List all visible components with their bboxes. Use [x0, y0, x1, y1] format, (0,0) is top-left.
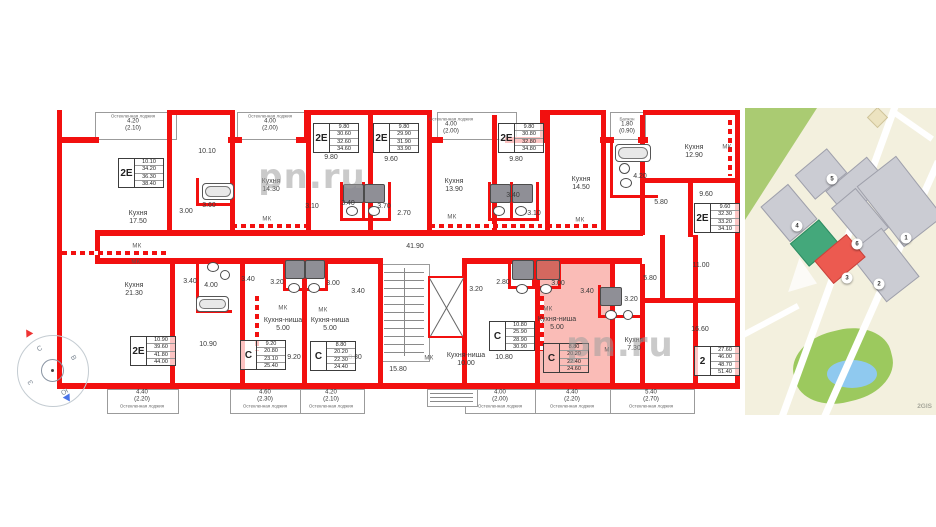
- wall-segment: [167, 140, 172, 235]
- room-label: 15.80: [389, 366, 407, 374]
- unit-spec-table[interactable]: 2Е10.1034.2036.3038.40: [118, 158, 164, 188]
- room-label: Кухня-ниша 5.00: [538, 316, 576, 332]
- unit-area-value: 32.60: [330, 139, 358, 146]
- unit-type-label: С: [490, 322, 506, 350]
- map-provider-logo: 2GIS: [917, 403, 932, 410]
- unit-type-label: 2Е: [499, 124, 515, 152]
- dashed-wall-segment: [62, 251, 167, 255]
- loggia-coeff-value: (2.20): [564, 396, 580, 403]
- loggia-caption: Остекленная лоджия: [120, 403, 164, 408]
- room-label: 3.40: [241, 276, 255, 284]
- loggia-area-value: 4.00: [494, 390, 506, 397]
- stair-divider-line: [404, 268, 405, 356]
- loggia-area-value: 1.80: [621, 122, 633, 129]
- room-label: 3.20: [270, 279, 284, 287]
- map-road: [745, 303, 800, 341]
- loggia-coeff-value: (2.00): [262, 126, 278, 133]
- shower-tray-icon: [600, 287, 622, 306]
- unit-area-value: 23.10: [257, 356, 285, 363]
- floorplan-viewer: 10.10Кухня 17.503.003.60Кухня 14.30МКМК9…: [0, 0, 936, 527]
- room-label: 4.20: [633, 173, 647, 181]
- loggia-area-value: 4.40: [566, 390, 578, 397]
- room-label: Кухня 14.30: [262, 178, 281, 194]
- wall-segment: [306, 115, 311, 235]
- room-label: МК: [604, 348, 613, 355]
- toilet-icon: [308, 283, 320, 293]
- loggia-label: Остекленная лоджия4.20(2.10): [94, 114, 172, 133]
- room-label: 10.90: [199, 341, 217, 349]
- wall-segment: [688, 180, 693, 237]
- room-label: 3.20: [469, 286, 483, 294]
- unit-areas: 27.6046.0048.7051.40: [711, 347, 739, 375]
- unit-area-value: 32.30: [711, 211, 739, 218]
- room-label: Кухня 17.50: [129, 210, 148, 226]
- unit-spec-table[interactable]: 2Е9.8029.9031.9033.90: [373, 123, 419, 153]
- room-label: 3.70: [377, 203, 391, 211]
- unit-area-value: 32.80: [515, 139, 543, 146]
- wall-segment: [660, 235, 665, 298]
- unit-spec-table[interactable]: 2Е9.8030.6032.6034.60: [313, 123, 359, 153]
- room-label: МК: [131, 260, 140, 267]
- unit-spec-table[interactable]: С9.2020.8023.1025.40: [240, 340, 286, 370]
- toilet-icon: [620, 178, 632, 188]
- wall-segment: [170, 258, 175, 389]
- bathtub-icon: [196, 296, 229, 312]
- loggia-coeff-value: (2.00): [443, 129, 459, 136]
- unit-areas: 10.8025.9028.9030.90: [506, 322, 534, 350]
- unit-type-label: 2Е: [131, 337, 147, 365]
- unit-area-value: 8.80: [327, 342, 355, 349]
- wall-segment: [488, 218, 539, 221]
- room-label: Кухня 12.90: [685, 144, 704, 160]
- map-road: [890, 108, 934, 142]
- wall-segment: [610, 258, 615, 389]
- unit-area-value: 9.80: [515, 124, 543, 131]
- shower-tray-icon: [305, 260, 325, 279]
- unit-areas: 9.8030.8032.8034.80: [515, 124, 543, 152]
- balcony-outline: [380, 264, 430, 362]
- loggia-area-value: 4.00: [445, 122, 457, 129]
- unit-area-value: 33.20: [711, 219, 739, 226]
- wall-segment: [388, 182, 391, 221]
- unit-area-value: 36.30: [135, 174, 163, 181]
- unit-area-value: 25.90: [506, 329, 534, 336]
- room-label: 9.60: [699, 191, 713, 199]
- loggia-label: 4.20(2.10)Остекленная лоджия: [292, 390, 370, 409]
- loggia-label: Балкон1.80(0.90): [588, 117, 666, 136]
- unit-area-value: 9.80: [330, 124, 358, 131]
- loggia-area-value: 4.00: [264, 119, 276, 126]
- unit-type-label: С: [311, 342, 327, 370]
- toilet-icon: [515, 206, 527, 216]
- unit-areas: 10.9039.6041.8044.00: [147, 337, 175, 365]
- wall-segment: [340, 218, 391, 221]
- room-label: 3.00: [551, 280, 565, 288]
- bathtub-basin: [199, 299, 226, 309]
- unit-type-label: С: [544, 344, 560, 372]
- room-label: 3.00: [326, 280, 340, 288]
- unit-areas: 9.8030.6032.6034.60: [330, 124, 358, 152]
- unit-area-value: 10.90: [147, 337, 175, 344]
- room-label: МК: [722, 145, 731, 152]
- bathtub-icon: [615, 144, 651, 162]
- bathtub-basin: [618, 147, 648, 159]
- loggia-area-value: 5.40: [645, 390, 657, 397]
- wall-segment: [545, 115, 550, 235]
- unit-area-value: 41.80: [147, 352, 175, 359]
- dashed-wall-segment: [232, 224, 306, 228]
- unit-type-label: 2Е: [695, 204, 711, 232]
- room-label: 9.60: [384, 156, 398, 164]
- map-building-marker[interactable]: 3: [842, 273, 853, 284]
- loggia-caption: Остекленная лоджия: [550, 403, 594, 408]
- unit-area-value: 24.60: [560, 366, 588, 372]
- wall-segment: [57, 110, 62, 389]
- room-label: 3.40: [506, 192, 520, 200]
- map-building-marker[interactable]: 2: [874, 279, 885, 290]
- shower-tray-icon: [285, 260, 305, 279]
- unit-area-value: 10.10: [135, 159, 163, 166]
- unit-area-value: 30.60: [330, 131, 358, 138]
- loggia-caption: Остекленная лоджия: [309, 403, 353, 408]
- unit-area-value: 46.00: [711, 354, 739, 361]
- loggia-area-value: 4.40: [136, 390, 148, 397]
- unit-type-label: 2: [695, 347, 711, 375]
- wall-segment: [95, 230, 100, 264]
- room-label: 5.80: [643, 275, 657, 283]
- room-label: МК: [318, 308, 327, 315]
- unit-area-value: 34.60: [330, 146, 358, 152]
- room-label: МК: [262, 217, 271, 224]
- room-label: 5.80: [654, 199, 668, 207]
- loggia-area-value: 4.20: [127, 119, 139, 126]
- room-label: МК: [575, 218, 584, 225]
- loggia-caption: Остекленная лоджия: [629, 403, 673, 408]
- unit-area-value: 8.80: [560, 344, 588, 351]
- unit-area-value: 9.80: [390, 124, 418, 131]
- room-label: МК: [447, 215, 456, 222]
- unit-area-value: 24.40: [327, 364, 355, 370]
- toilet-icon: [288, 283, 300, 293]
- map-building-marker[interactable]: 1: [901, 233, 912, 244]
- loggia-label: 4.00(2.00)Остекленная лоджия: [461, 390, 539, 409]
- unit-type-label: 2Е: [119, 159, 135, 187]
- room-label: 2.70: [397, 210, 411, 218]
- unit-spec-table[interactable]: 2Е10.9039.6041.8044.00: [130, 336, 176, 366]
- wall-segment: [492, 115, 497, 235]
- shower-tray-icon: [364, 184, 385, 203]
- loggia-coeff-value: (2.70): [643, 396, 659, 403]
- room-label: 9.80: [509, 156, 523, 164]
- room-label: Кухня 7.30: [625, 337, 644, 353]
- wall-segment: [167, 110, 235, 115]
- unit-area-value: 34.20: [135, 166, 163, 173]
- sink-icon: [619, 163, 630, 174]
- unit-area-value: 22.30: [327, 357, 355, 364]
- loggia-label: Остекленная лоджия4.00(2.00): [412, 117, 490, 136]
- room-label: 3.40: [580, 288, 594, 296]
- unit-area-value: 9.60: [711, 204, 739, 211]
- room-label: 10.10: [198, 148, 216, 156]
- toilet-icon: [540, 284, 552, 294]
- unit-spec-table[interactable]: 2Е9.6032.3033.2034.10: [694, 203, 740, 233]
- unit-area-value: 31.90: [390, 139, 418, 146]
- unit-area-value: 10.80: [506, 322, 534, 329]
- room-label: 16.60: [691, 326, 709, 334]
- room-label: Кухня 14.50: [572, 176, 591, 192]
- elevator-shaft: [428, 276, 465, 338]
- room-label: 3.00: [179, 208, 193, 216]
- loggia-label: 5.40(2.70)Остекленная лоджия: [612, 390, 690, 409]
- room-label: Кухня-ниша 5.00: [264, 317, 302, 333]
- map-building-marker[interactable]: 5: [827, 174, 838, 185]
- unit-type-label: С: [241, 341, 257, 369]
- unit-spec-table[interactable]: 2Е9.8030.8032.8034.80: [498, 123, 544, 153]
- unit-area-value: 22.40: [560, 359, 588, 366]
- sink-icon: [220, 270, 230, 280]
- unit-spec-table[interactable]: 227.6046.0048.7051.40: [694, 346, 740, 376]
- loggia-label: 4.40(2.20)Остекленная лоджия: [533, 390, 611, 409]
- room-label: Кухня 21.30: [125, 282, 144, 298]
- unit-area-value: 33.90: [390, 146, 418, 152]
- room-label: 3.40: [341, 200, 355, 208]
- unit-area-value: 51.40: [711, 369, 739, 375]
- room-label: 9.80: [324, 154, 338, 162]
- loggia-coeff-value: (2.10): [323, 396, 339, 403]
- unit-spec-table[interactable]: С8.8020.2022.4024.60: [543, 343, 589, 373]
- unit-area-value: 28.90: [506, 337, 534, 344]
- unit-area-value: 44.00: [147, 359, 175, 365]
- loggia-caption: Остекленная лоджия: [243, 403, 287, 408]
- unit-areas: 8.8020.2022.3024.40: [327, 342, 355, 370]
- room-label: Кухня-ниша 5.00: [311, 317, 349, 333]
- room-label: 3.40: [351, 288, 365, 296]
- bathtub-basin: [205, 186, 231, 197]
- map-building-marker[interactable]: 4: [792, 221, 803, 232]
- unit-area-value: 20.20: [560, 351, 588, 358]
- unit-spec-table[interactable]: С8.8020.2022.3024.40: [310, 341, 356, 371]
- wall-segment: [610, 140, 613, 198]
- loggia-label: Остекленная лоджия4.00(2.00): [231, 114, 309, 133]
- unit-areas: 9.2020.8023.1025.40: [257, 341, 285, 369]
- unit-areas: 8.8020.2022.4024.60: [560, 344, 588, 372]
- loggia-area-value: 4.20: [325, 390, 337, 397]
- loggia-coeff-value: (2.20): [134, 396, 150, 403]
- loggia-coeff-value: (2.30): [257, 396, 273, 403]
- room-label: 3.40: [183, 278, 197, 286]
- unit-areas: 10.1034.2036.3038.40: [135, 159, 163, 187]
- bathtub-icon: [202, 183, 234, 200]
- room-label: Кухня-ниша 10.00: [447, 352, 485, 368]
- minimap[interactable]: 2GIS 546132: [745, 108, 936, 415]
- shower-tray-icon: [512, 260, 534, 280]
- room-label: 11.00: [693, 262, 710, 270]
- unit-area-value: 20.80: [257, 348, 285, 355]
- dashed-wall-segment: [547, 224, 602, 228]
- unit-area-value: 38.40: [135, 181, 163, 187]
- wall-segment: [643, 110, 740, 115]
- loggia-coeff-value: (0.90): [619, 129, 635, 136]
- room-label: Кухня 13.90: [445, 178, 464, 194]
- loggia-area-value: 4.60: [259, 390, 271, 397]
- unit-area-value: 39.60: [147, 344, 175, 351]
- room-label: 3.60: [202, 202, 216, 210]
- shower-tray-icon: [536, 260, 560, 280]
- room-label: МК: [132, 244, 141, 251]
- room-label: 4.00: [204, 282, 218, 290]
- map-building-marker[interactable]: 6: [852, 239, 863, 250]
- toilet-icon: [207, 262, 219, 272]
- unit-type-label: 2Е: [314, 124, 330, 152]
- unit-area-value: 29.90: [390, 131, 418, 138]
- room-label: 41.90: [406, 243, 424, 251]
- unit-area-value: 34.10: [711, 226, 739, 232]
- wall-segment: [610, 195, 658, 198]
- unit-area-value: 30.80: [515, 131, 543, 138]
- unit-type-label: 2Е: [374, 124, 390, 152]
- room-label: 2.80: [496, 279, 510, 287]
- unit-area-value: 20.20: [327, 349, 355, 356]
- wall-segment: [95, 230, 643, 236]
- unit-area-value: 34.80: [515, 146, 543, 152]
- unit-area-value: 27.60: [711, 347, 739, 354]
- unit-areas: 9.8029.9031.9033.90: [390, 124, 418, 152]
- room-label: 10.80: [495, 354, 513, 362]
- unit-area-value: 9.20: [257, 341, 285, 348]
- unit-area-value: 48.70: [711, 362, 739, 369]
- wall-segment: [643, 178, 740, 183]
- toilet-icon: [516, 284, 528, 294]
- wall-segment: [378, 258, 383, 389]
- unit-areas: 9.6032.3033.2034.10: [711, 204, 739, 232]
- loggia-coeff-value: (2.10): [125, 126, 141, 133]
- wall-segment: [427, 140, 432, 235]
- room-label: 3.10: [527, 210, 541, 218]
- wall-segment: [196, 178, 199, 206]
- room-label: МК: [424, 356, 433, 363]
- room-label: 3.20: [624, 296, 638, 304]
- loggia-caption: Остекленная лоджия: [478, 403, 522, 408]
- wall-segment: [57, 383, 740, 389]
- room-label: 3.10: [305, 203, 319, 211]
- room-label: МК: [278, 306, 287, 313]
- unit-area-value: 30.90: [506, 344, 534, 350]
- toilet-icon: [605, 310, 617, 320]
- wall-segment: [643, 298, 740, 303]
- loggia-coeff-value: (2.00): [492, 396, 508, 403]
- unit-area-value: 25.40: [257, 363, 285, 369]
- dashed-wall-segment: [430, 224, 542, 228]
- sink-icon: [623, 310, 633, 320]
- room-label: МК: [543, 307, 552, 314]
- toilet-icon: [493, 206, 505, 216]
- wall-segment: [57, 137, 99, 143]
- unit-spec-table[interactable]: С10.8025.9028.9030.90: [489, 321, 535, 351]
- loggia-label: 4.40(2.20)Остекленная лоджия: [103, 390, 181, 409]
- room-label: 9.20: [287, 354, 301, 362]
